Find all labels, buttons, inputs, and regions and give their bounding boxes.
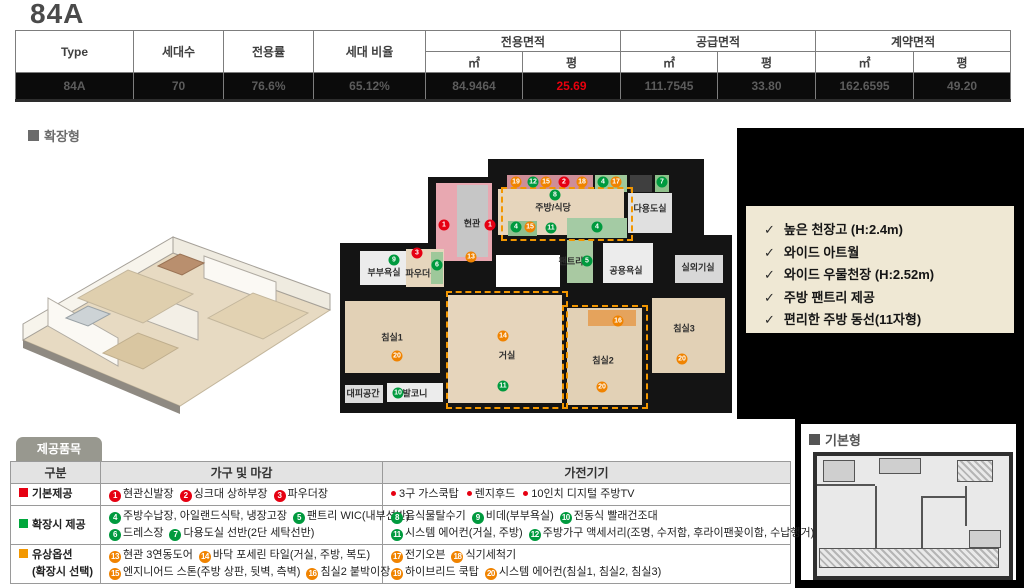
number-badge-icon: 12 (529, 529, 541, 541)
appliance-cell: 8음식물탈수기9비데(부부욕실)10전동식 빨래건조대11시스템 에어컨(거실,… (383, 506, 791, 545)
item-line: 6드레스장7다용도실 선반(2단 세탁선반) (109, 525, 376, 542)
room-label: 부부욕실 (367, 266, 400, 279)
items-row: 확장시 제공4주방수납장, 아일랜드식탁, 냉장고장5팬트리 WIC(내부선반)… (11, 506, 791, 545)
check-icon: ✓ (764, 222, 775, 237)
cell-private-ratio: 76.6% (224, 73, 314, 101)
item-line: 8음식물탈수기9비데(부부욕실)10전동식 빨래건조대 (391, 508, 784, 525)
feature-box: ✓높은 천장고 (H:2.4m)✓와이드 아트월✓와이드 우물천장 (H:2.5… (746, 206, 1014, 333)
category-line: 기본제공 (19, 486, 94, 503)
item-number-badge: 1 (485, 220, 496, 231)
item-number-badge: 5 (582, 256, 593, 267)
item-number-badge: 6 (432, 260, 443, 271)
sub-py: 평 (523, 52, 621, 73)
basic-type-label: 기본형 (809, 430, 861, 449)
number-badge-icon: 5 (293, 512, 305, 524)
item-number-badge: 20 (677, 354, 688, 365)
cell-type: 84A (16, 73, 134, 101)
dot-bullet-icon (467, 491, 472, 496)
room (652, 298, 725, 373)
check-icon: ✓ (764, 312, 775, 327)
room-label: 현관 (464, 217, 481, 230)
feature-item: ✓높은 천장고 (H:2.4m) (764, 219, 1014, 242)
item-number-badge: 20 (597, 382, 608, 393)
expanded-type-label: 확장형 (28, 126, 80, 145)
item-number-badge: 20 (392, 351, 403, 362)
room-label: 침실1 (381, 331, 403, 344)
items-row: 기본제공1현관신발장2싱크대 상하부장3파우더장3구 가스쿡탑렌지후드10인치 … (11, 484, 791, 506)
item-text: 전동식 빨래건조대 (574, 510, 658, 522)
sub-py: 평 (718, 52, 816, 73)
item-line: 19하이브리드 쿡탑20시스템 에어컨(침실1, 침실2, 침실3) (391, 564, 784, 581)
item-line: 3구 가스쿡탑렌지후드10인치 디지털 주방TV (391, 486, 784, 503)
item-number-badge: 1 (439, 220, 450, 231)
item-line: 17전기오븐18식기세척기 (391, 547, 784, 564)
item-text: 식기세척기 (465, 549, 516, 561)
col-type: Type (16, 31, 134, 73)
item-number-badge: 2 (559, 177, 570, 188)
check-icon: ✓ (764, 290, 775, 305)
square-bullet-icon (809, 434, 820, 445)
furniture-cell: 13현관 3연동도어14바닥 포세린 타일(거실, 주방, 복도)15엔지니어드… (101, 545, 383, 584)
item-text: 현관신발장 (123, 488, 174, 500)
cell-supply-py: 33.80 (718, 73, 816, 101)
item-text: 시스템 에어컨(거실, 주방) (405, 527, 523, 539)
col-units: 세대수 (134, 31, 224, 73)
number-badge-icon: 15 (109, 568, 121, 580)
room-label: 팬트리 (559, 255, 584, 268)
cell-private-m2: 84.9464 (426, 73, 523, 101)
room-label: 대피공간 (346, 387, 379, 400)
item-number-badge: 4 (598, 177, 609, 188)
room-label: 침실3 (673, 322, 695, 335)
check-icon: ✓ (764, 267, 775, 282)
item-text: 3구 가스쿡탑 (399, 488, 459, 500)
dot-bullet-icon (523, 491, 528, 496)
category-cell: 확장시 제공 (11, 506, 101, 545)
floorplan-3d-image (8, 148, 338, 428)
item-text: 10인치 디지털 주방TV (531, 488, 634, 500)
number-badge-icon: 19 (391, 568, 403, 580)
number-badge-icon: 14 (199, 551, 211, 563)
sub-py: 평 (914, 52, 1011, 73)
item-number-badge: 9 (389, 255, 400, 266)
item-text: 비데(부부욕실) (486, 510, 554, 522)
item-number-badge: 17 (611, 177, 622, 188)
item-line: 4주방수납장, 아일랜드식탁, 냉장고장5팬트리 WIC(내부선반) (109, 508, 376, 525)
feature-item: ✓편리한 주방 동선(11자형) (764, 309, 1014, 332)
number-badge-icon: 8 (391, 512, 403, 524)
feature-item: ✓와이드 아트월 (764, 242, 1014, 265)
item-number-badge: 16 (613, 316, 624, 327)
item-number-badge: 12 (528, 177, 539, 188)
category-square-icon (19, 549, 28, 558)
feature-list: ✓높은 천장고 (H:2.4m)✓와이드 아트월✓와이드 우물천장 (H:2.5… (764, 219, 1014, 332)
feature-item: ✓주방 팬트리 제공 (764, 287, 1014, 310)
item-text: 하이브리드 쿡탑 (405, 566, 479, 578)
cell-unit-ratio: 65.12% (314, 73, 426, 101)
number-badge-icon: 6 (109, 529, 121, 541)
appliance-cell: 3구 가스쿡탑렌지후드10인치 디지털 주방TV (383, 484, 791, 506)
items-table: 구분 가구 및 마감 가전기기 기본제공1현관신발장2싱크대 상하부장3파우더장… (10, 461, 791, 584)
room-label: 발코니 (403, 387, 428, 400)
room (630, 175, 652, 192)
item-text: 전기오븐 (405, 549, 445, 561)
feature-item: ✓와이드 우물천장 (H:2.52m) (764, 264, 1014, 287)
item-line: 1현관신발장2싱크대 상하부장3파우더장 (109, 486, 376, 503)
category-square-icon (19, 519, 28, 528)
item-number-badge: 11 (546, 223, 557, 234)
item-number-badge: 13 (466, 252, 477, 263)
number-badge-icon: 7 (169, 529, 181, 541)
item-line: 13현관 3연동도어14바닥 포세린 타일(거실, 주방, 복도) (109, 547, 376, 564)
furniture-cell: 4주방수납장, 아일랜드식탁, 냉장고장5팬트리 WIC(내부선반)6드레스장7… (101, 506, 383, 545)
expansion-outline (446, 291, 568, 409)
sub-m2: ㎡ (816, 52, 914, 73)
number-badge-icon: 10 (560, 512, 572, 524)
number-badge-icon: 17 (391, 551, 403, 563)
item-number-badge: 11 (498, 381, 509, 392)
floorplan-2d-expanded: 주방/식당다용도실현관팬트리공용욕실실외기실부부욕실파우더룸침실1거실침실2침실… (340, 155, 740, 418)
number-badge-icon: 3 (274, 490, 286, 502)
number-badge-icon: 11 (391, 529, 403, 541)
sub-m2: ㎡ (621, 52, 718, 73)
items-tab: 제공품목 (16, 437, 102, 461)
number-badge-icon: 16 (306, 568, 318, 580)
floorplan-2d-basic (813, 452, 1013, 580)
cell-contract-m2: 162.6595 (816, 73, 914, 101)
number-badge-icon: 4 (109, 512, 121, 524)
col-private-area: 전용면적 (426, 31, 621, 52)
item-text: 시스템 에어컨(침실1, 침실2, 침실3) (499, 566, 661, 578)
item-number-badge: 7 (657, 177, 668, 188)
expansion-outline (562, 305, 648, 409)
item-line: 11시스템 에어컨(거실, 주방)12주방가구 액세서리(조명, 수저함, 후라… (391, 525, 784, 542)
category-line: 유상옵션 (19, 547, 94, 564)
number-badge-icon: 20 (485, 568, 497, 580)
items-col-appliance: 가전기기 (383, 462, 791, 484)
item-number-badge: 14 (498, 331, 509, 342)
item-number-badge: 15 (525, 222, 536, 233)
col-supply-area: 공급면적 (621, 31, 816, 52)
cell-contract-py: 49.20 (914, 73, 1011, 101)
number-badge-icon: 9 (472, 512, 484, 524)
item-number-badge: 3 (412, 248, 423, 259)
number-badge-icon: 2 (180, 490, 192, 502)
category-line: 확장시 제공 (19, 517, 94, 534)
cell-units: 70 (134, 73, 224, 101)
category-line: (확장시 선택) (19, 564, 94, 581)
item-text: 바닥 포세린 타일(거실, 주방, 복도) (213, 549, 370, 561)
items-col-category: 구분 (11, 462, 101, 484)
item-text: 엔지니어드 스톤(주방 상판, 뒷벽, 측벽) (123, 566, 300, 578)
item-text: 렌지후드 (475, 488, 515, 500)
item-line: 15엔지니어드 스톤(주방 상판, 뒷벽, 측벽)16침실2 붙박이장 (109, 564, 376, 581)
dot-bullet-icon (391, 491, 396, 496)
item-text: 파우더장 (288, 488, 328, 500)
furniture-cell: 1현관신발장2싱크대 상하부장3파우더장 (101, 484, 383, 506)
number-badge-icon: 1 (109, 490, 121, 502)
room-label: 실외기실 (681, 261, 714, 274)
items-col-furniture: 가구 및 마감 (101, 462, 383, 484)
number-badge-icon: 18 (451, 551, 463, 563)
cell-private-py-highlight: 25.69 (523, 73, 621, 101)
category-square-icon (19, 488, 28, 497)
item-text: 침실2 붙박이장 (320, 566, 390, 578)
item-text: 주방가구 액세서리(조명, 수저함, 후라이팬꽂이함, 수납행거) (543, 527, 815, 539)
col-private-ratio: 전용률 (224, 31, 314, 73)
room-label: 공용욕실 (609, 264, 642, 277)
unit-info-page: 84A Type 세대수 전용률 세대 비율 전용면적 공급면적 계약면적 ㎡ … (0, 0, 1024, 588)
square-bullet-icon (28, 130, 39, 141)
item-text: 음식물탈수기 (405, 510, 466, 522)
spec-table: Type 세대수 전용률 세대 비율 전용면적 공급면적 계약면적 ㎡ 평 ㎡ … (15, 30, 1011, 102)
appliance-cell: 17전기오븐18식기세척기19하이브리드 쿡탑20시스템 에어컨(침실1, 침실… (383, 545, 791, 584)
item-text: 주방수납장, 아일랜드식탁, 냉장고장 (123, 510, 287, 522)
item-text: 다용도실 선반(2단 세탁선반) (183, 527, 314, 539)
col-unit-ratio: 세대 비율 (314, 31, 426, 73)
check-icon: ✓ (764, 245, 775, 260)
items-row: 유상옵션(확장시 선택)13현관 3연동도어14바닥 포세린 타일(거실, 주방… (11, 545, 791, 584)
cell-supply-m2: 111.7545 (621, 73, 718, 101)
expansion-outline (501, 187, 633, 241)
item-text: 싱크대 상하부장 (194, 488, 268, 500)
page-title: 84A (30, 0, 84, 30)
item-number-badge: 15 (541, 177, 552, 188)
item-number-badge: 4 (511, 222, 522, 233)
item-text: 드레스장 (123, 527, 163, 539)
item-text: 현관 3연동도어 (123, 549, 193, 561)
item-number-badge: 4 (592, 222, 603, 233)
category-cell: 유상옵션(확장시 선택) (11, 545, 101, 584)
item-number-badge: 19 (511, 177, 522, 188)
col-contract-area: 계약면적 (816, 31, 1011, 52)
item-number-badge: 8 (550, 190, 561, 201)
basic-type-card: 기본형 (801, 424, 1016, 580)
sub-m2: ㎡ (426, 52, 523, 73)
room-label: 다용도실 (633, 202, 666, 215)
item-number-badge: 10 (393, 388, 404, 399)
item-number-badge: 18 (577, 177, 588, 188)
category-cell: 기본제공 (11, 484, 101, 506)
number-badge-icon: 13 (109, 551, 121, 563)
